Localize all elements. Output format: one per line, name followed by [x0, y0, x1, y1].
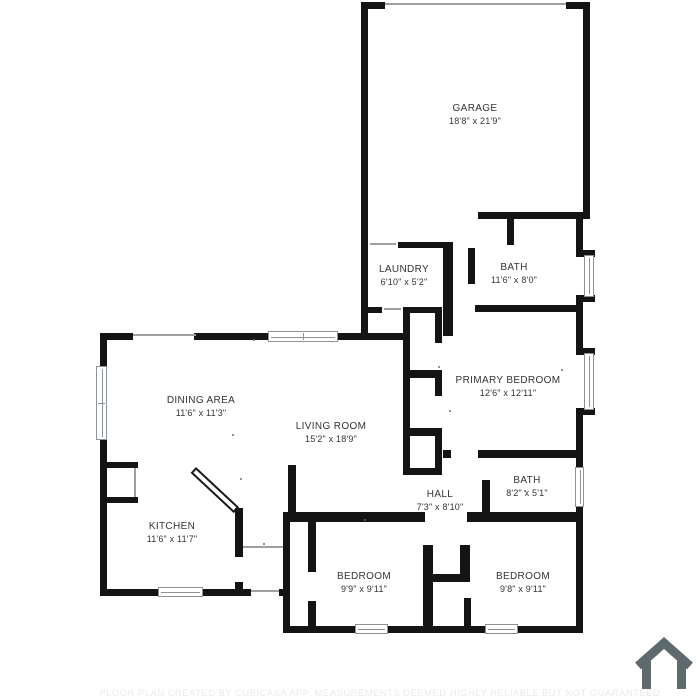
room-label-bath-upper: BATH 11'6" x 8'0": [491, 262, 537, 286]
room-label-hall: HALL 7'3" x 8'10": [417, 489, 464, 513]
wall-segment: [388, 626, 485, 633]
wall-segment: [518, 626, 583, 633]
wall-segment: [443, 450, 451, 458]
window: [355, 624, 388, 634]
wall-segment: [435, 313, 442, 343]
door-opening-line: [384, 308, 401, 310]
window: [268, 331, 338, 342]
marker-dot: [240, 478, 242, 480]
wall-segment: [443, 242, 453, 336]
wall-segment: [467, 512, 583, 522]
wall-segment: [235, 582, 243, 596]
room-name: BEDROOM: [337, 571, 391, 583]
door-opening-line: [370, 243, 396, 245]
wall-segment: [100, 333, 107, 368]
room-name: GARAGE: [449, 103, 501, 115]
wall-segment: [403, 313, 410, 475]
wall-segment: [478, 450, 576, 458]
marker-dot: [263, 543, 265, 545]
house-logo-icon: [633, 634, 695, 696]
floor-plan: GARAGE 18'8" x 21'9" LAUNDRY 6'10" x 5'2…: [0, 0, 700, 700]
room-name: BEDROOM: [496, 571, 550, 583]
door-opening-line: [134, 468, 136, 497]
wall-segment: [403, 370, 442, 378]
marker-dot: [438, 366, 440, 368]
wall-segment: [478, 212, 590, 219]
wall-segment: [361, 2, 368, 340]
window: [485, 624, 518, 634]
wall-segment: [338, 333, 410, 340]
room-dims: 9'9" x 9'11": [337, 583, 391, 595]
room-name: BATH: [506, 475, 548, 487]
room-name: DINING AREA: [167, 395, 235, 407]
wall-segment: [403, 468, 442, 475]
wall-segment: [283, 512, 425, 522]
wall-segment: [398, 242, 445, 248]
wall-segment: [279, 589, 290, 596]
door-opening-line: [385, 3, 566, 5]
marker-dot: [524, 490, 526, 492]
room-name: LIVING ROOM: [296, 421, 367, 433]
wall-segment: [423, 545, 433, 626]
window: [584, 353, 594, 410]
wall-segment: [433, 574, 470, 582]
wall-segment: [308, 601, 316, 626]
marker-dot: [449, 410, 451, 412]
door-opening-line: [133, 334, 196, 336]
wall-segment: [583, 2, 590, 219]
room-dims: 11'6" x 11'3": [167, 407, 235, 419]
room-name: BATH: [491, 262, 537, 274]
wall-segment: [464, 598, 471, 626]
room-dims: 18'8" x 21'9": [449, 115, 501, 127]
wall-segment: [100, 497, 138, 503]
wall-segment: [283, 626, 355, 633]
wall-segment: [460, 545, 470, 576]
wall-segment: [100, 589, 158, 596]
room-label-dining-area: DINING AREA 11'6" x 11'3": [167, 395, 235, 419]
wall-segment: [288, 465, 296, 512]
door-opening-line: [251, 590, 279, 592]
wall-segment: [468, 248, 475, 284]
window: [158, 587, 203, 597]
room-dims: 8'2" x 5'1": [506, 487, 548, 499]
room-label-bedroom-right: BEDROOM 9'8" x 9'11": [496, 571, 550, 595]
room-label-kitchen: KITCHEN 11'6" x 11'7": [147, 521, 198, 545]
wall-segment: [576, 505, 583, 633]
room-label-living-room: LIVING ROOM 15'2" x 18'9": [296, 421, 367, 445]
room-dims: 11'6" x 11'7": [147, 533, 198, 545]
wall-segment: [576, 413, 583, 467]
wall-segment: [368, 307, 382, 313]
room-name: KITCHEN: [147, 521, 198, 533]
room-dims: 12'6" x 12'11": [456, 387, 561, 399]
disclaimer-text: FLOOR PLAN CREATED BY CUBICASA APP. MEAS…: [100, 688, 660, 699]
room-label-bath-lower: BATH 8'2" x 5'1": [506, 475, 548, 499]
wall-segment: [308, 522, 316, 572]
wall-segment: [235, 508, 243, 557]
room-name: LAUNDRY: [379, 264, 429, 276]
room-name: HALL: [417, 489, 464, 501]
marker-dot: [253, 339, 255, 341]
room-name: PRIMARY BEDROOM: [456, 375, 561, 387]
window: [584, 255, 594, 297]
wall-segment: [100, 462, 138, 468]
wall-segment: [435, 378, 442, 396]
room-dims: 9'8" x 9'11": [496, 583, 550, 595]
wall-segment: [435, 436, 442, 468]
room-label-primary-bedroom: PRIMARY BEDROOM 12'6" x 12'11": [456, 375, 561, 399]
wall-segment: [198, 333, 270, 340]
room-label-garage: GARAGE 18'8" x 21'9": [449, 103, 501, 127]
room-label-bedroom-left: BEDROOM 9'9" x 9'11": [337, 571, 391, 595]
wall-segment: [475, 305, 580, 312]
marker-dot: [232, 434, 234, 436]
window: [575, 467, 584, 507]
door-opening-line: [243, 546, 283, 548]
kitchen-angled-counter: [191, 467, 240, 513]
wall-segment: [283, 522, 290, 633]
room-dims: 11'6" x 8'0": [491, 274, 537, 286]
window: [96, 366, 107, 440]
room-dims: 15'2" x 18'9": [296, 433, 367, 445]
wall-segment: [507, 219, 514, 245]
marker-dot: [364, 519, 366, 521]
room-label-laundry: LAUNDRY 6'10" x 5'2": [379, 264, 429, 288]
wall-segment: [243, 589, 251, 596]
wall-segment: [403, 428, 442, 436]
wall-segment: [482, 480, 490, 513]
marker-dot: [561, 369, 563, 371]
room-dims: 6'10" x 5'2": [379, 276, 429, 288]
